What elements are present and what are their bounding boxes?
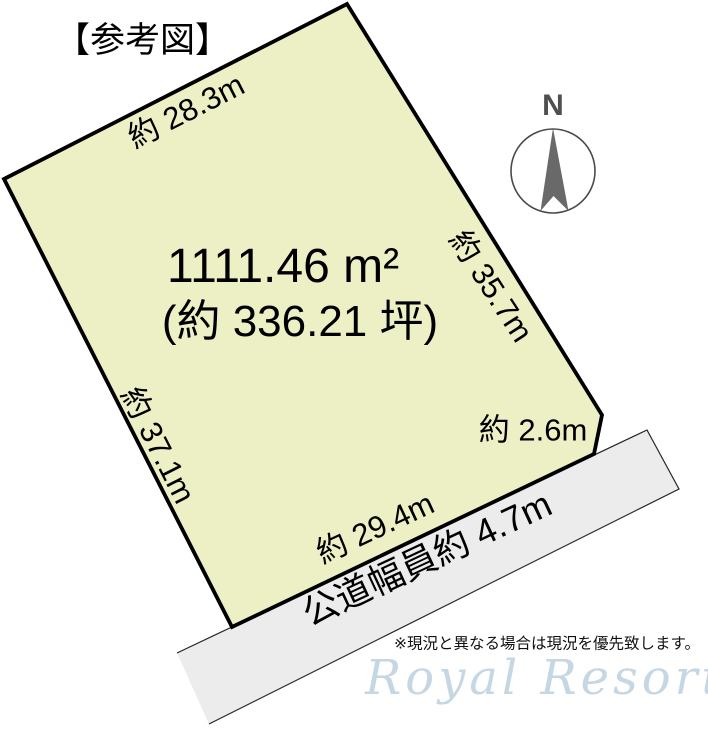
area-value-tsubo: (約 336.21 坪) bbox=[162, 300, 438, 344]
north-label: N bbox=[542, 91, 564, 121]
dimension-label-corner: 約 2.6m bbox=[479, 415, 588, 446]
brand-watermark: Royal Resort bbox=[365, 654, 708, 702]
reference-figure: 【参考図】 N 約 28.3m 約 35.7m 約 37.1m 約 29.4m … bbox=[0, 0, 708, 746]
compass-rose bbox=[511, 128, 595, 213]
area-value-m2: 1111.46 m² bbox=[167, 243, 399, 291]
plot-diagram-canvas bbox=[0, 0, 708, 746]
page-title: 【参考図】 bbox=[55, 12, 230, 63]
